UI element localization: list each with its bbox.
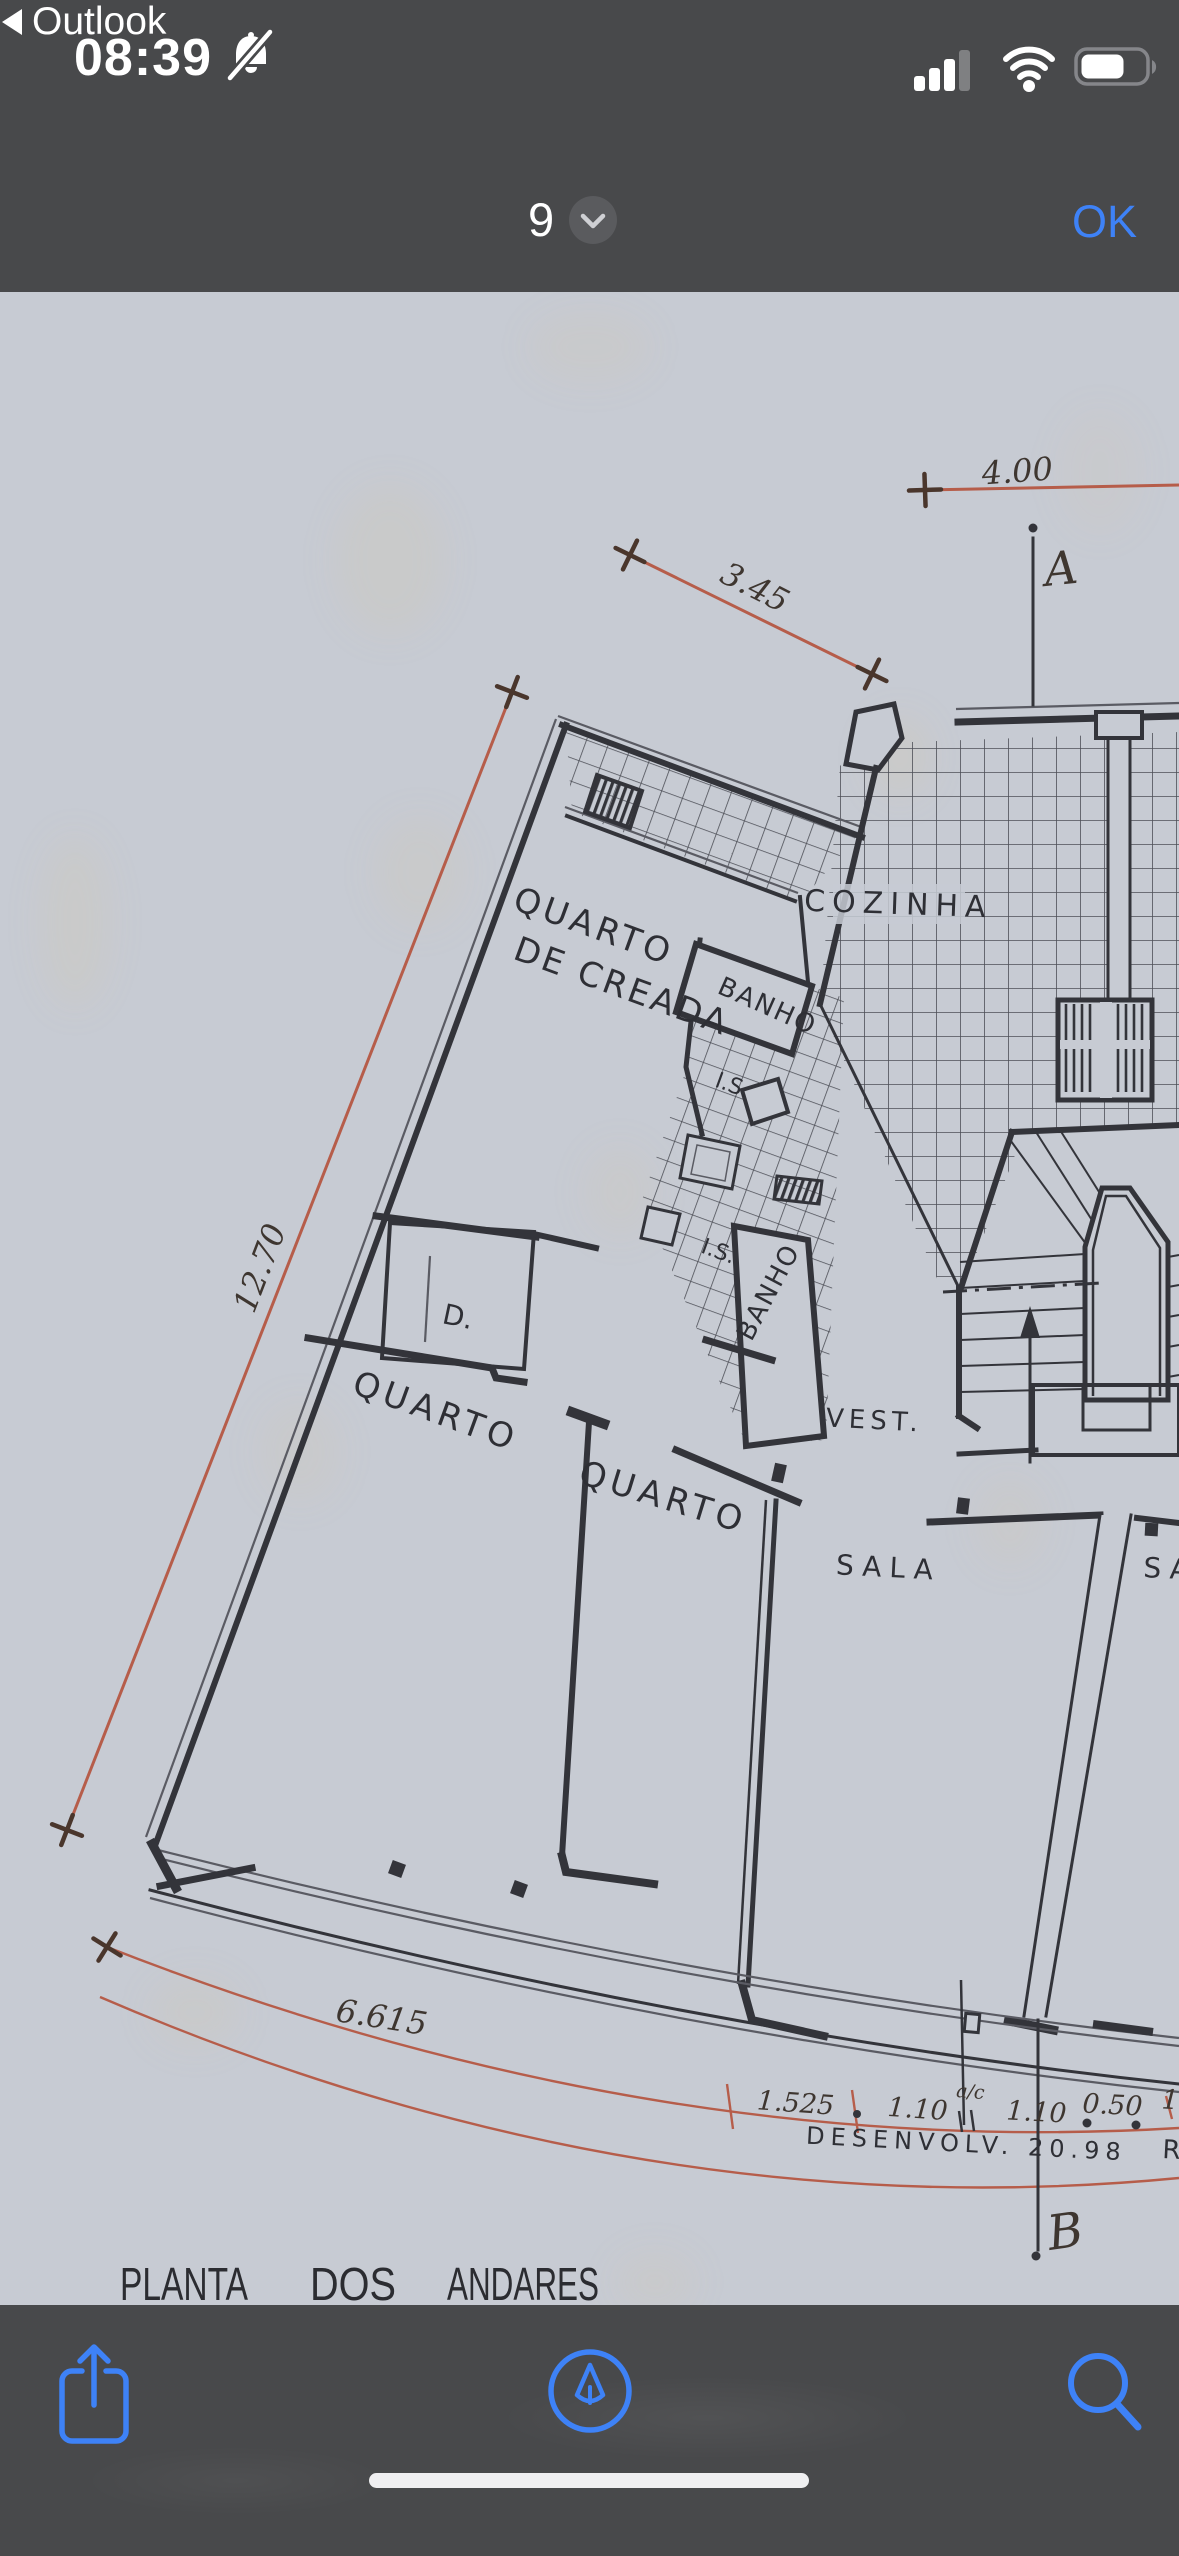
search-icon[interactable]: [1060, 2347, 1152, 2439]
wifi-icon: [1006, 50, 1052, 92]
page-number: 9: [528, 192, 554, 247]
dim-label-left-diag: 12.70: [226, 1218, 294, 1317]
status-time: 08:39: [74, 28, 212, 88]
battery-icon: [1076, 49, 1156, 84]
room-label-kitchen: COZINHA: [804, 884, 994, 926]
ok-button[interactable]: OK: [1072, 196, 1137, 248]
back-chevron-icon: [0, 8, 22, 36]
cell-signal-icon: [914, 50, 970, 91]
dim-label-arc-seg2: 1.10: [887, 2092, 949, 2127]
room-label-vestibule: VEST.: [825, 1403, 923, 1438]
markup-icon[interactable]: [546, 2347, 634, 2435]
dim-label-arc-seg3: 1.10: [1006, 2095, 1068, 2129]
section-marker-b: B: [1043, 2202, 1087, 2263]
bottom-toolbar: [0, 2305, 1179, 2556]
iphone-screen: 08:39 Outlook: [0, 0, 1179, 2556]
floorplan-image: QUARTO DE CREADA BANHO COZINHA I.S. I.S.…: [0, 292, 1179, 2305]
dim-label-development: DESENVOLV. 20.98: [805, 2122, 1127, 2167]
plan-title: PLANTA DOS ANDARES: [120, 2258, 599, 2305]
dim-label-top: 4.00: [979, 450, 1054, 493]
curved-facade: [150, 1840, 1179, 2092]
dim-label-arc-partial: 1.: [1161, 2084, 1179, 2116]
section-marker-a: A: [1038, 540, 1081, 598]
room-label-living1: SALA: [835, 1548, 941, 1586]
dim-label-development-partial: R: [1162, 2135, 1179, 2166]
dim-label-arc-seg4: 0.50: [1082, 2088, 1144, 2122]
dim-label-upper-diag: 3.45: [715, 554, 796, 620]
status-icons: [906, 40, 1176, 96]
room-label-living2: SALA: [1143, 1551, 1179, 1589]
dimension-lines: [46, 473, 1179, 2187]
bell-slash-icon: [222, 26, 280, 84]
home-indicator[interactable]: [369, 2473, 809, 2488]
plan-title-word2: DOS: [310, 2258, 396, 2305]
dim-label-bottom-arc: 6.615: [334, 1991, 430, 2043]
paper-stains: [40, 312, 1140, 2305]
plan-title-word1: PLANTA: [120, 2258, 248, 2305]
share-icon[interactable]: [48, 2343, 140, 2447]
dim-label-arc-seg1: 1.525: [756, 2085, 835, 2121]
room-label-bedroom2: QUARTO: [574, 1453, 752, 1542]
floorplan-document[interactable]: QUARTO DE CREADA BANHO COZINHA I.S. I.S.…: [0, 292, 1179, 2305]
page-dropdown-button[interactable]: 9: [528, 192, 618, 247]
status-nav-bar: 08:39 Outlook: [0, 0, 1179, 292]
dim-label-arc-note: a/c: [955, 2080, 985, 2104]
chevron-down-icon: [568, 195, 618, 245]
plan-title-word3: ANDARES: [447, 2258, 599, 2305]
room-label-closet: D.: [440, 1297, 477, 1336]
